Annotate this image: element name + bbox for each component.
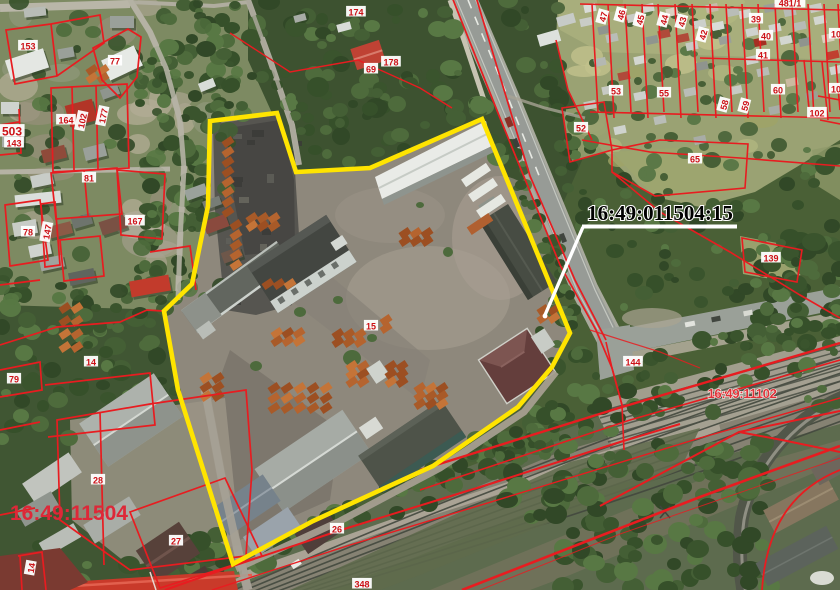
svg-text:77: 77 [110,57,120,67]
svg-text:14: 14 [86,358,96,368]
svg-text:503: 503 [2,125,22,139]
svg-text:139: 139 [763,254,778,264]
svg-text:40: 40 [761,32,771,42]
svg-text:60: 60 [773,86,783,96]
svg-text:102: 102 [809,109,824,119]
svg-text:65: 65 [690,155,700,165]
svg-text:174: 174 [348,8,363,18]
svg-text:27: 27 [171,537,181,547]
svg-text:16:49:011504:15: 16:49:011504:15 [587,201,733,225]
svg-text:167: 167 [127,217,142,227]
svg-text:481/1: 481/1 [779,0,802,9]
svg-text:41: 41 [758,51,768,61]
svg-text:348: 348 [354,580,369,590]
svg-text:81: 81 [84,174,94,184]
svg-text:69: 69 [366,65,376,75]
svg-text:53: 53 [611,87,621,97]
svg-text:143: 143 [6,139,21,149]
svg-text:153: 153 [20,42,35,52]
svg-text:15: 15 [366,322,376,332]
svg-text:178: 178 [383,58,398,68]
svg-text:28: 28 [93,476,103,486]
svg-text:39: 39 [751,15,761,25]
svg-text:26: 26 [332,525,342,535]
svg-text:79: 79 [9,375,19,385]
svg-text:16:49:11504: 16:49:11504 [10,502,128,525]
svg-text:52: 52 [576,124,586,134]
svg-text:10: 10 [831,85,840,95]
svg-text:144: 144 [625,358,640,368]
svg-text:10: 10 [831,30,840,40]
svg-text:78: 78 [23,228,33,238]
svg-text:14: 14 [26,562,38,574]
svg-text:164: 164 [58,116,73,126]
svg-text:16:49:11102: 16:49:11102 [708,386,777,401]
svg-text:55: 55 [659,89,669,99]
